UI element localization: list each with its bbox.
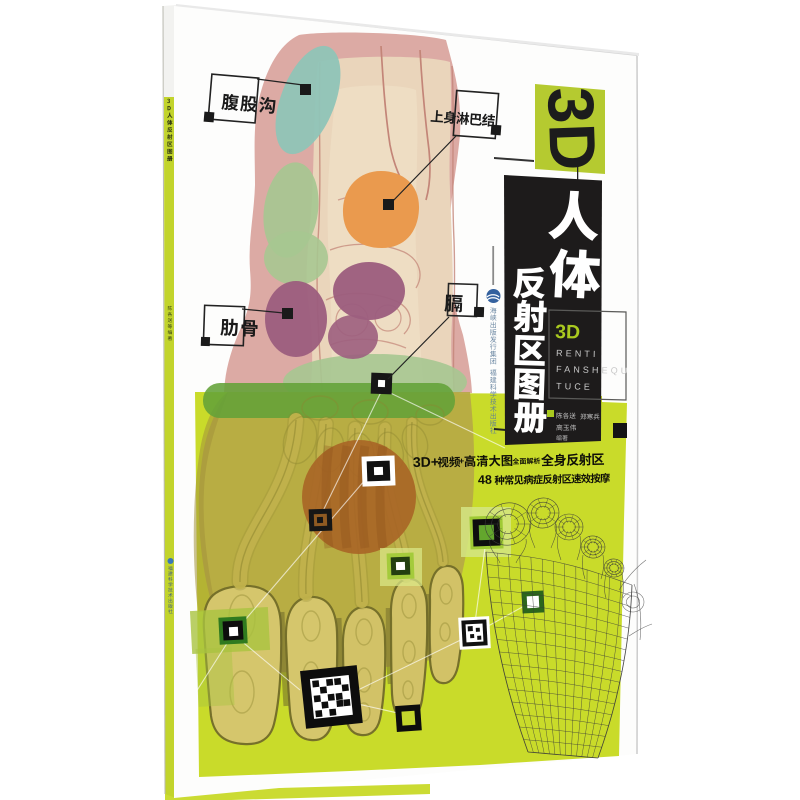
svg-text:48: 48 (478, 473, 492, 487)
svg-text:3D+: 3D+ (413, 453, 439, 470)
svg-text:+: + (459, 456, 464, 466)
svg-text:3D: 3D (534, 86, 610, 172)
svg-text:RENTI: RENTI (556, 348, 599, 359)
svg-text:TUCE: TUCE (556, 381, 593, 392)
svg-text:3D: 3D (555, 321, 581, 344)
svg-text:FANSHEQU: FANSHEQU (556, 364, 631, 376)
